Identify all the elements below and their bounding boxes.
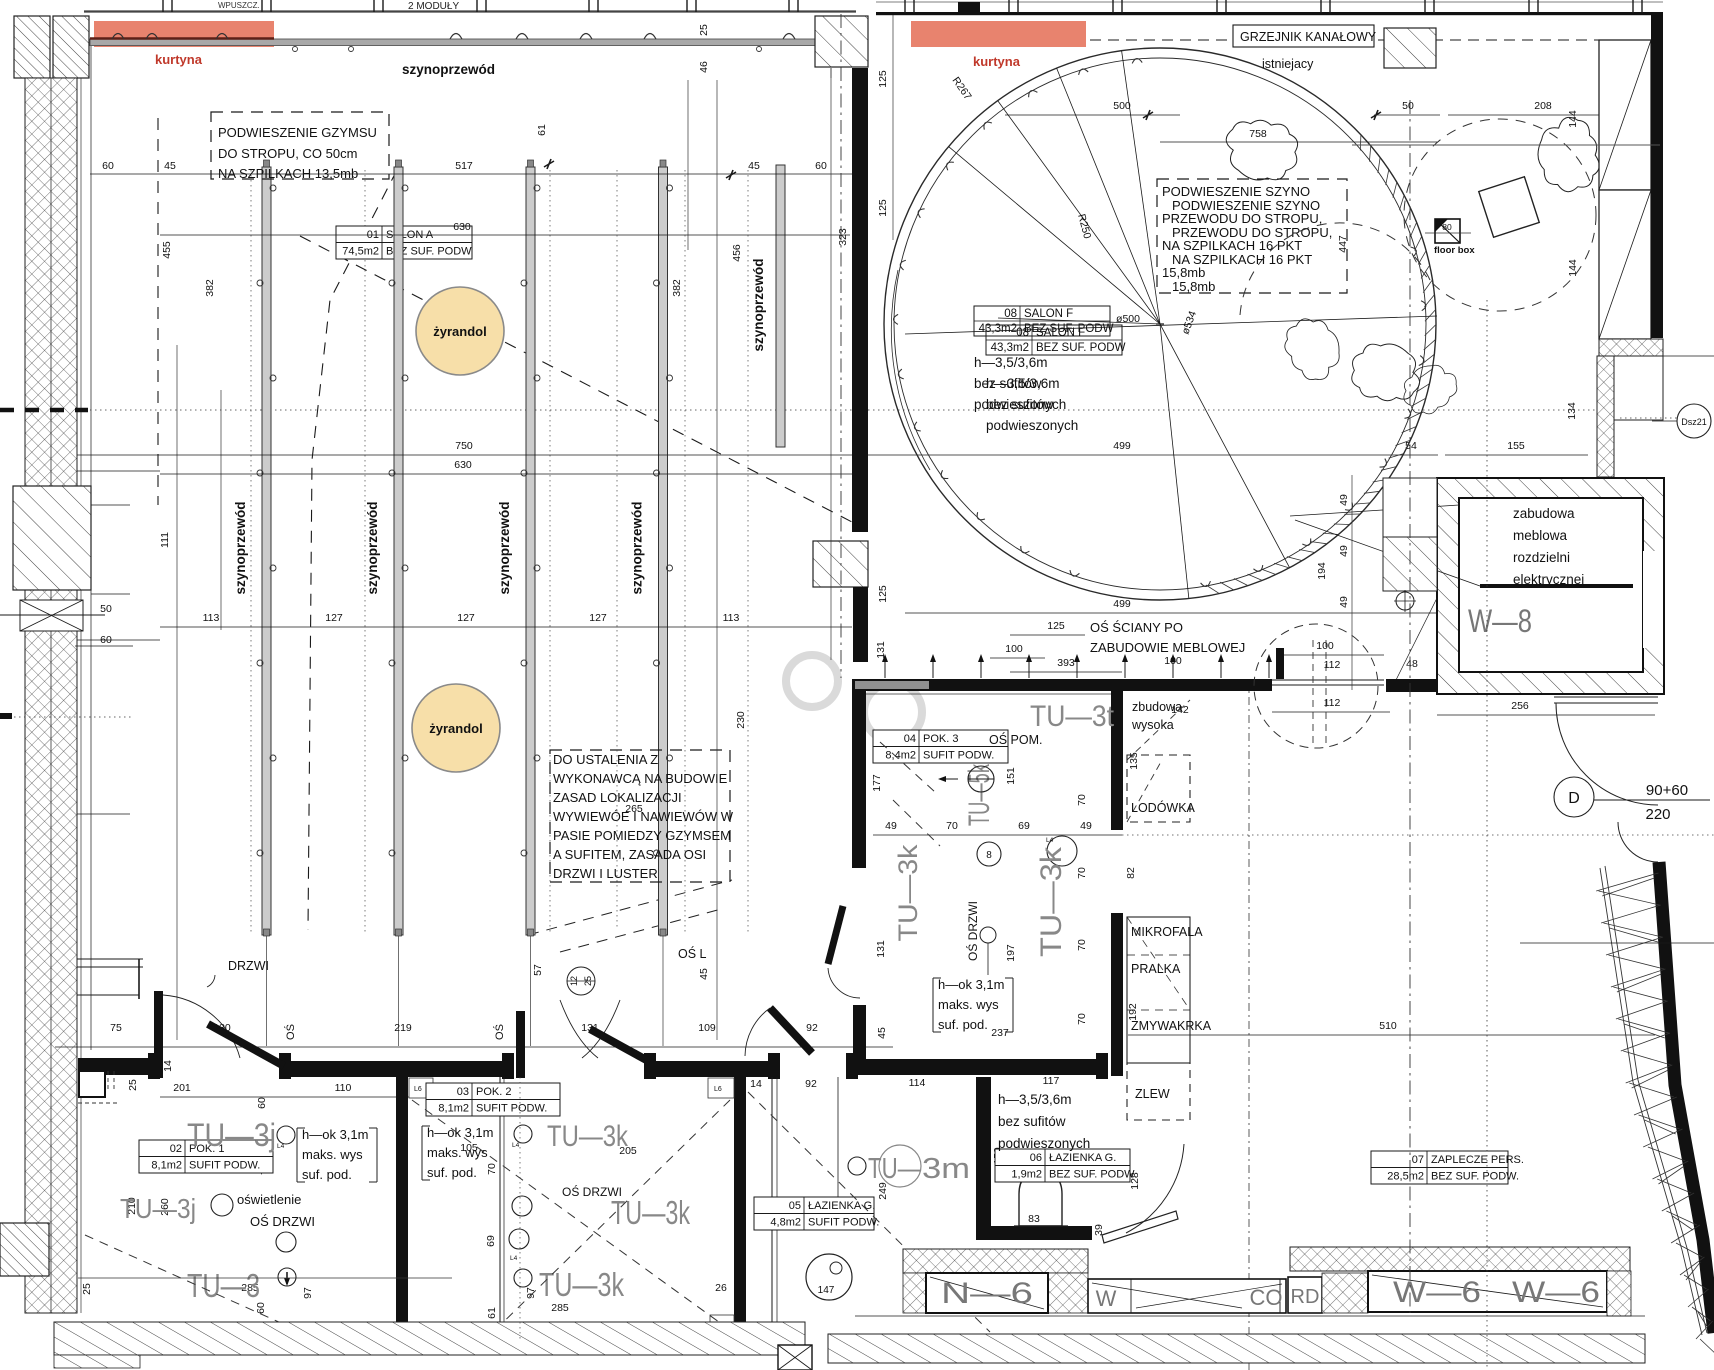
svg-text:151: 151 — [1005, 767, 1017, 785]
svg-text:TU—3t: TU—3t — [1030, 700, 1115, 733]
svg-text:NA SZPILKACH 16 PKT: NA SZPILKACH 16 PKT — [1172, 252, 1312, 267]
svg-text:393: 393 — [1057, 657, 1075, 669]
svg-text:219: 219 — [394, 1022, 412, 1034]
svg-text:SUFIT PODW.: SUFIT PODW. — [808, 1217, 879, 1229]
svg-text:zabudowa: zabudowa — [1513, 506, 1575, 521]
svg-text:517: 517 — [455, 160, 473, 172]
svg-text:201: 201 — [173, 1082, 191, 1094]
svg-text:DRZWI: DRZWI — [228, 959, 269, 973]
svg-text:256: 256 — [1511, 700, 1529, 712]
svg-text:zbudowa: zbudowa — [1132, 700, 1182, 714]
svg-text:45: 45 — [876, 1027, 888, 1039]
svg-text:SUFIT PODW.: SUFIT PODW. — [923, 750, 994, 762]
svg-text:100: 100 — [1316, 640, 1334, 652]
svg-text:PRZEWODU DO STROPU,: PRZEWODU DO STROPU, — [1172, 225, 1332, 240]
svg-text:82: 82 — [1125, 867, 1137, 879]
svg-text:DO STROPU, CO 50cm: DO STROPU, CO 50cm — [218, 146, 357, 161]
svg-text:BEZ SUF. PODW.: BEZ SUF. PODW. — [1049, 1169, 1137, 1181]
svg-text:48: 48 — [1406, 658, 1418, 670]
svg-text:06: 06 — [1030, 1152, 1042, 1164]
svg-text:125: 125 — [877, 585, 889, 603]
svg-text:oświetlenie: oświetlenie — [237, 1192, 301, 1207]
svg-text:382: 382 — [671, 279, 683, 297]
svg-text:żyrandol: żyrandol — [429, 721, 482, 736]
svg-text:70: 70 — [1076, 867, 1088, 879]
svg-text:49: 49 — [1338, 596, 1350, 608]
svg-text:DRZWI I LUSTER: DRZWI I LUSTER — [553, 866, 658, 881]
svg-text:127: 127 — [457, 612, 475, 624]
svg-text:61: 61 — [486, 1307, 498, 1319]
svg-text:69: 69 — [1018, 820, 1030, 832]
svg-text:BEZ SUF. PODW: BEZ SUF. PODW — [1036, 342, 1126, 354]
svg-text:113: 113 — [723, 612, 740, 624]
svg-text:74,5m2: 74,5m2 — [342, 246, 379, 258]
svg-text:61: 61 — [536, 124, 548, 136]
svg-text:230: 230 — [735, 711, 747, 729]
svg-text:szynoprzewód: szynoprzewód — [365, 501, 380, 594]
svg-text:144: 144 — [1567, 110, 1579, 128]
svg-text:499: 499 — [1113, 440, 1131, 452]
svg-text:114: 114 — [909, 1077, 926, 1089]
svg-text:OŚ ŚCIANY PO: OŚ ŚCIANY PO — [1090, 620, 1183, 635]
svg-text:OŚ POM.: OŚ POM. — [989, 732, 1042, 747]
svg-text:630: 630 — [453, 221, 471, 233]
svg-text:510: 510 — [1379, 1020, 1397, 1032]
svg-text:rozdzielni: rozdzielni — [1513, 550, 1570, 565]
svg-text:PRZEWODU DO STROPU,: PRZEWODU DO STROPU, — [1162, 211, 1322, 226]
svg-text:NA SZPILKACH 16 PKT: NA SZPILKACH 16 PKT — [1162, 238, 1302, 253]
svg-text:OŚ DRZWI: OŚ DRZWI — [562, 1184, 622, 1199]
svg-text:ZMYWAKRKA: ZMYWAKRKA — [1131, 1019, 1212, 1033]
svg-text:szynoprzewód: szynoprzewód — [402, 62, 495, 77]
svg-text:meblowa: meblowa — [1513, 528, 1568, 543]
svg-text:07: 07 — [1412, 1154, 1424, 1166]
svg-text:26: 26 — [715, 1282, 727, 1294]
svg-text:15,8mb: 15,8mb — [1162, 265, 1205, 280]
svg-text:1,9m2: 1,9m2 — [1011, 1169, 1042, 1181]
svg-text:97: 97 — [302, 1287, 314, 1299]
svg-text:W—6: W—6 — [1393, 1276, 1481, 1309]
svg-text:Dsz21: Dsz21 — [1681, 417, 1707, 427]
svg-text:BEZ SUF. PODW.: BEZ SUF. PODW. — [1431, 1171, 1519, 1183]
svg-text:TU—3k: TU—3k — [893, 844, 923, 942]
svg-text:750: 750 — [455, 440, 473, 452]
svg-text:70: 70 — [486, 1163, 498, 1175]
svg-text:podwieszonych: podwieszonych — [986, 418, 1078, 433]
svg-text:285: 285 — [551, 1302, 569, 1314]
svg-text:h—ok 3,1m: h—ok 3,1m — [302, 1127, 368, 1142]
svg-text:suf. pod.: suf. pod. — [427, 1165, 477, 1180]
svg-text:25: 25 — [127, 1079, 139, 1091]
svg-text:W—6: W—6 — [1512, 1276, 1600, 1309]
svg-text:46: 46 — [698, 61, 710, 73]
svg-text:kurtyna: kurtyna — [155, 52, 203, 67]
svg-text:szynoprzewód: szynoprzewód — [751, 258, 766, 351]
svg-text:60: 60 — [100, 634, 112, 646]
svg-text:LODÓWKA: LODÓWKA — [1131, 800, 1196, 815]
svg-text:43,3m2: 43,3m2 — [991, 342, 1029, 354]
svg-text:TU—3: TU—3 — [187, 1267, 260, 1304]
svg-text:ZAPLECZE PERS.: ZAPLECZE PERS. — [1431, 1154, 1524, 1166]
svg-text:W—8: W—8 — [1468, 603, 1532, 639]
svg-text:h—ok 3,1m: h—ok 3,1m — [427, 1125, 493, 1140]
svg-text:h—ok 3,1m: h—ok 3,1m — [938, 977, 1004, 992]
svg-text:8,1m2: 8,1m2 — [438, 1103, 469, 1115]
svg-text:TU—3j: TU—3j — [120, 1193, 196, 1224]
svg-text:147: 147 — [818, 1285, 835, 1296]
svg-text:125: 125 — [1047, 620, 1065, 632]
svg-text:TU—3k: TU—3k — [611, 1194, 690, 1231]
svg-text:60: 60 — [102, 160, 114, 172]
svg-text:SUFIT PODW.: SUFIT PODW. — [189, 1160, 260, 1172]
svg-text:177: 177 — [871, 774, 883, 792]
svg-text:TU—5k: TU—5k — [963, 763, 996, 826]
svg-text:49: 49 — [885, 820, 897, 832]
svg-text:49: 49 — [1080, 820, 1092, 832]
svg-text:14: 14 — [750, 1078, 762, 1090]
svg-text:500: 500 — [1113, 100, 1131, 112]
svg-text:maks. wys: maks. wys — [302, 1147, 363, 1162]
svg-text:OŚ: OŚ — [493, 1024, 506, 1040]
svg-text:499: 499 — [1113, 598, 1131, 610]
svg-text:25: 25 — [698, 24, 710, 36]
svg-text:45: 45 — [698, 968, 710, 980]
svg-text:08: 08 — [1004, 308, 1017, 320]
svg-text:L6: L6 — [414, 1086, 422, 1093]
svg-text:194: 194 — [1316, 562, 1328, 580]
svg-text:70: 70 — [1076, 794, 1088, 806]
svg-text:h—3,5/3,6m: h—3,5/3,6m — [986, 376, 1060, 391]
svg-text:SUFIT PODW.: SUFIT PODW. — [476, 1103, 547, 1115]
svg-text:PODWIESZENIE SZYNO: PODWIESZENIE SZYNO — [1162, 184, 1310, 199]
svg-text:14: 14 — [162, 1060, 174, 1072]
svg-text:NA SZPILKACH 13,5mb: NA SZPILKACH 13,5mb — [218, 166, 358, 181]
svg-text:OŚ DRZWI: OŚ DRZWI — [250, 1214, 315, 1229]
svg-text:2 MODUŁY: 2 MODUŁY — [408, 1, 459, 12]
svg-text:197: 197 — [1005, 944, 1017, 962]
svg-text:ZASAD LOKALIZACJI: ZASAD LOKALIZACJI — [553, 790, 682, 805]
svg-text:127: 127 — [325, 612, 343, 624]
svg-text:4,8m2: 4,8m2 — [770, 1217, 801, 1229]
svg-text:70: 70 — [1076, 1013, 1088, 1025]
svg-text:110: 110 — [335, 1082, 352, 1094]
svg-text:113: 113 — [203, 612, 220, 624]
svg-text:ŁAZIENKA G.: ŁAZIENKA G. — [1049, 1152, 1116, 1164]
svg-text:WYWIEWÓE I NAWIEWÓW W: WYWIEWÓE I NAWIEWÓW W — [553, 809, 734, 824]
svg-text:60: 60 — [815, 160, 827, 172]
svg-text:TU—: TU— — [868, 1153, 920, 1185]
svg-text:ŁAZIENKA G.: ŁAZIENKA G. — [808, 1200, 875, 1212]
svg-text:208: 208 — [1534, 100, 1552, 112]
svg-text:suf. pod.: suf. pod. — [302, 1167, 352, 1182]
svg-text:maks. wys: maks. wys — [427, 1145, 488, 1160]
svg-text:12: 12 — [569, 976, 579, 986]
svg-text:50: 50 — [1402, 100, 1414, 112]
svg-text:D: D — [1568, 790, 1580, 807]
svg-text:50: 50 — [100, 603, 112, 615]
svg-text:3m: 3m — [922, 1153, 970, 1185]
svg-text:49: 49 — [1338, 545, 1350, 557]
svg-text:05: 05 — [789, 1200, 801, 1212]
svg-text:podwieszonych: podwieszonych — [998, 1136, 1090, 1151]
svg-text:floor box: floor box — [1434, 245, 1475, 256]
svg-text:żyrandol: żyrandol — [433, 324, 486, 339]
svg-text:WPUSZCZ.: WPUSZCZ. — [218, 1, 260, 10]
svg-text:97: 97 — [525, 1287, 537, 1299]
svg-text:111: 111 — [159, 532, 171, 548]
svg-text:TU—3k: TU—3k — [1035, 846, 1068, 957]
svg-text:100: 100 — [1005, 643, 1023, 655]
svg-text:02: 02 — [170, 1143, 182, 1155]
svg-text:134: 134 — [1566, 402, 1578, 420]
svg-text:GRZEJNIK KANAŁOWY: GRZEJNIK KANAŁOWY — [1240, 30, 1377, 44]
svg-text:szynoprzewód: szynoprzewód — [630, 501, 645, 594]
svg-text:382: 382 — [204, 279, 216, 297]
svg-text:125: 125 — [877, 70, 889, 88]
svg-text:TU—3j: TU—3j — [187, 1117, 276, 1153]
svg-text:MIKROFALA: MIKROFALA — [1131, 925, 1203, 939]
svg-text:RD: RD — [1291, 1286, 1320, 1308]
svg-text:OŚ L: OŚ L — [678, 946, 707, 961]
svg-text:L4: L4 — [277, 1143, 285, 1150]
svg-text:70: 70 — [946, 820, 958, 832]
svg-text:PODWIESZENIE GZYMSU: PODWIESZENIE GZYMSU — [218, 125, 377, 140]
svg-text:57: 57 — [532, 964, 544, 976]
svg-text:144: 144 — [1567, 259, 1579, 277]
svg-text:8,1m2: 8,1m2 — [151, 1160, 182, 1172]
svg-text:8: 8 — [986, 850, 992, 861]
svg-text:45: 45 — [748, 160, 760, 172]
svg-text:455: 455 — [161, 241, 173, 259]
svg-text:04: 04 — [904, 733, 916, 745]
svg-text:L4: L4 — [1046, 837, 1054, 844]
svg-text:90+60: 90+60 — [1646, 782, 1688, 799]
svg-text:220: 220 — [1645, 806, 1670, 823]
svg-text:60: 60 — [256, 1097, 268, 1109]
svg-text:15,8mb: 15,8mb — [1172, 279, 1215, 294]
svg-text:ZABUDOWIE MEBLOWEJ: ZABUDOWIE MEBLOWEJ — [1090, 640, 1245, 655]
svg-text:L6: L6 — [714, 1086, 722, 1093]
svg-text:ZLEW: ZLEW — [1135, 1087, 1170, 1101]
svg-text:POK. 3: POK. 3 — [923, 733, 958, 745]
svg-text:szynoprzewód: szynoprzewód — [497, 501, 512, 594]
svg-text:kurtyna: kurtyna — [973, 54, 1021, 69]
svg-text:49: 49 — [1338, 494, 1350, 506]
svg-text:PODWIESZENIE SZYNO: PODWIESZENIE SZYNO — [1172, 198, 1320, 213]
svg-text:28,5m2: 28,5m2 — [1387, 1171, 1424, 1183]
svg-text:758: 758 — [1249, 128, 1267, 140]
svg-text:h—3,5/3,6m: h—3,5/3,6m — [974, 355, 1048, 370]
svg-text:TU—3k: TU—3k — [547, 1120, 629, 1153]
svg-text:80: 80 — [1442, 222, 1452, 232]
svg-text:DO USTALENIA Z: DO USTALENIA Z — [553, 752, 658, 767]
svg-text:CO: CO — [1250, 1285, 1283, 1310]
svg-text:45: 45 — [164, 160, 176, 172]
svg-text:ø500: ø500 — [1116, 313, 1140, 325]
svg-text:WYKONAWCĄ NA BUDOWIE: WYKONAWCĄ NA BUDOWIE — [553, 771, 728, 786]
svg-text:125: 125 — [877, 199, 889, 217]
svg-text:OŚ: OŚ — [284, 1024, 297, 1040]
svg-text:117: 117 — [1043, 1075, 1060, 1087]
svg-text:PASIE POMIEDZY GZYMSEM: PASIE POMIEDZY GZYMSEM — [553, 828, 731, 843]
svg-text:SALON F: SALON F — [1036, 327, 1085, 339]
svg-text:OŚ DRZWI: OŚ DRZWI — [965, 901, 980, 961]
svg-text:maks. wys: maks. wys — [938, 997, 999, 1012]
svg-text:L4: L4 — [512, 1142, 520, 1149]
svg-text:630: 630 — [454, 459, 472, 471]
svg-text:92: 92 — [806, 1022, 818, 1034]
svg-text:bez sufitów: bez sufitów — [998, 1114, 1066, 1129]
svg-text:456: 456 — [731, 244, 743, 262]
svg-text:155: 155 — [1507, 440, 1525, 452]
svg-text:237: 237 — [991, 1027, 1009, 1039]
svg-text:70: 70 — [1076, 939, 1088, 951]
svg-text:PRALKA: PRALKA — [1131, 962, 1181, 976]
svg-text:bez sufitów: bez sufitów — [986, 397, 1054, 412]
svg-text:75: 75 — [110, 1022, 122, 1034]
svg-text:SALON F: SALON F — [1024, 308, 1073, 320]
svg-text:03: 03 — [457, 1086, 469, 1098]
svg-text:25: 25 — [81, 1283, 93, 1295]
svg-text:TU—3k: TU—3k — [539, 1266, 624, 1303]
svg-text:69: 69 — [485, 1235, 497, 1247]
svg-text:szynoprzewód: szynoprzewód — [233, 501, 248, 594]
svg-text:L4: L4 — [510, 1255, 518, 1262]
svg-text:83: 83 — [1028, 1213, 1040, 1225]
svg-text:08: 08 — [1016, 327, 1029, 339]
svg-text:8,4m2: 8,4m2 — [885, 750, 916, 762]
svg-text:127: 127 — [589, 612, 607, 624]
svg-text:109: 109 — [698, 1022, 716, 1034]
svg-text:131: 131 — [875, 940, 887, 958]
svg-text:N—6: N—6 — [941, 1277, 1033, 1310]
svg-text:suf. pod.: suf. pod. — [938, 1017, 988, 1032]
svg-text:A SUFITEM, ZASADA OSI: A SUFITEM, ZASADA OSI — [553, 847, 706, 862]
svg-text:92: 92 — [805, 1078, 817, 1090]
svg-text:h—3,5/3,6m: h—3,5/3,6m — [998, 1092, 1072, 1107]
svg-text:POK. 2: POK. 2 — [476, 1086, 511, 1098]
svg-text:323: 323 — [837, 228, 849, 246]
svg-text:wysoka: wysoka — [1131, 718, 1174, 732]
svg-text:istniejacy: istniejacy — [1262, 57, 1314, 71]
svg-text:W: W — [1096, 1286, 1117, 1311]
svg-text:25: 25 — [583, 976, 593, 986]
